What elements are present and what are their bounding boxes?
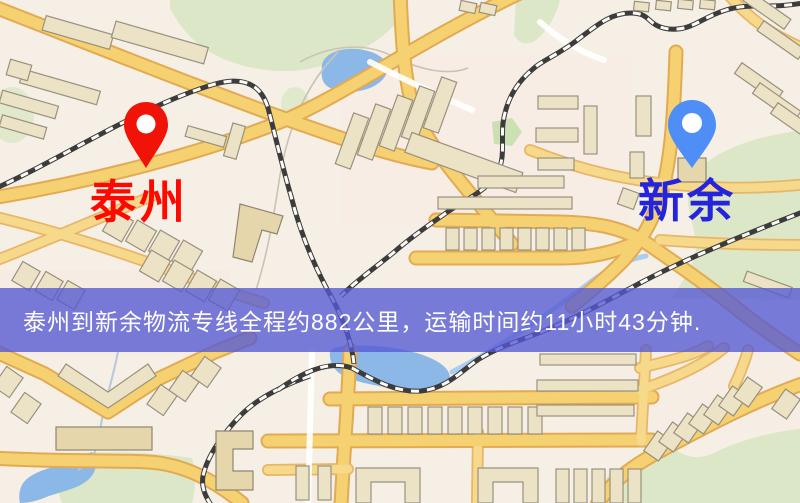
route-info-text: 泰州到新余物流专线全程约882公里，运输时间约11小时43分钟. [0, 303, 701, 337]
destination-city-label: 新余 [638, 177, 736, 228]
route-info-banner: 泰州到新余物流专线全程约882公里，运输时间约11小时43分钟. [0, 288, 800, 352]
origin-city-label: 泰州 [90, 178, 188, 229]
map-screenshot: 泰州 新余 泰州到新余物流专线全程约882公里，运输时间约11小时43分钟. [0, 0, 800, 503]
origin-pin-icon[interactable] [122, 100, 170, 170]
map-canvas[interactable] [0, 0, 800, 503]
destination-pin-icon[interactable] [666, 98, 718, 170]
